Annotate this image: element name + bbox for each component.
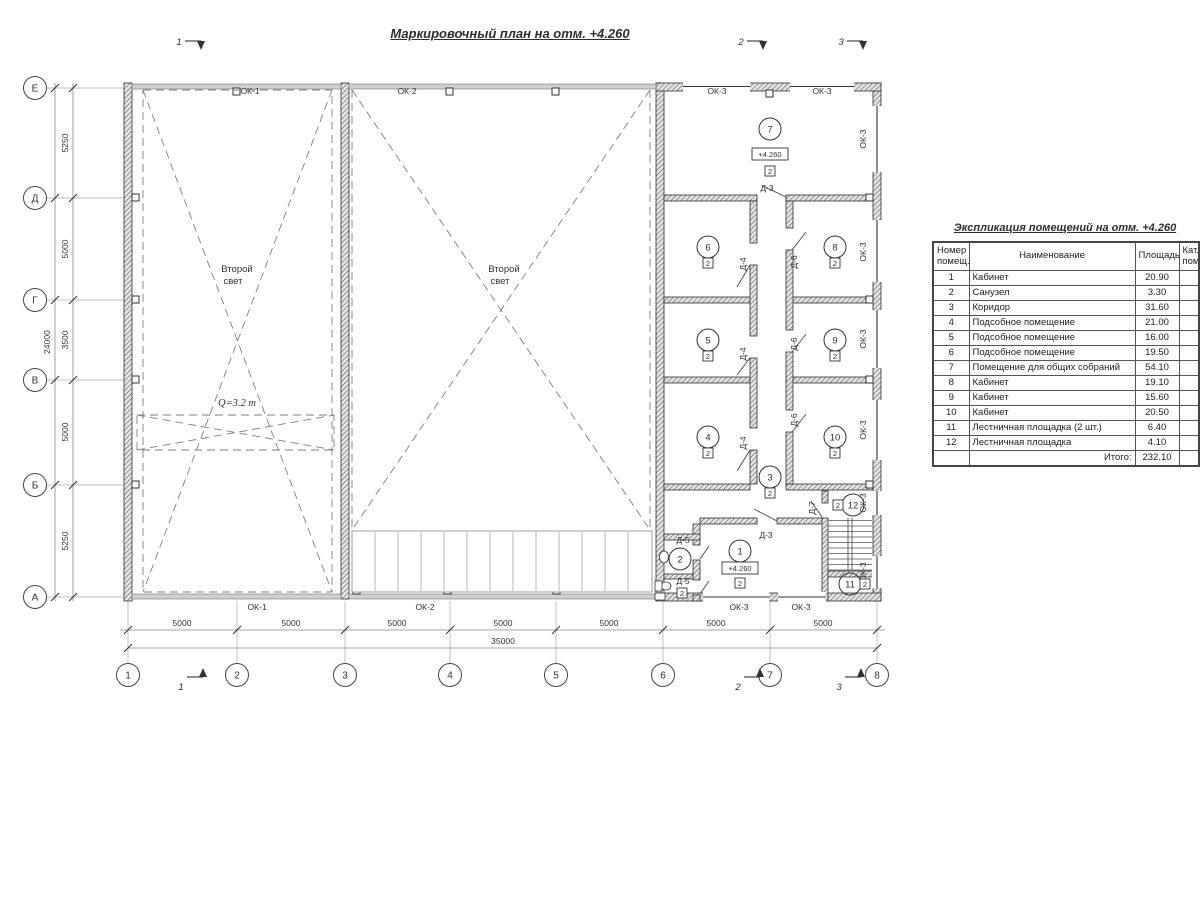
table-row: 9Кабинет15.60 bbox=[933, 391, 1199, 406]
table-cell: 1 bbox=[933, 271, 969, 286]
section-mark-label: 1 bbox=[176, 37, 181, 48]
table-cell: 9 bbox=[933, 391, 969, 406]
table-cell bbox=[1179, 316, 1199, 331]
second-light-label: Второй bbox=[221, 264, 252, 275]
section-mark-label: 3 bbox=[838, 37, 844, 48]
section-mark-label: 2 bbox=[737, 37, 744, 48]
window-label: ОК-3 bbox=[858, 129, 868, 148]
hall-glazed-walls bbox=[132, 84, 656, 599]
drawing-sheet: Маркировочный план на отм. +4.260 bbox=[0, 0, 1200, 900]
table-cell: 10 bbox=[933, 406, 969, 421]
section-mark-label: 1 bbox=[178, 682, 183, 693]
window-label: ОК-3 bbox=[729, 602, 748, 612]
table-cell bbox=[1179, 301, 1199, 316]
axis-row-label: Д bbox=[32, 194, 39, 205]
table-row: 1Кабинет20.90 bbox=[933, 271, 1199, 286]
table-cell bbox=[1179, 331, 1199, 346]
table-cell bbox=[1179, 436, 1199, 451]
table-cell: Коридор bbox=[969, 301, 1135, 316]
axis-row-label: Е bbox=[32, 84, 39, 95]
table-cell bbox=[1179, 271, 1199, 286]
door-label: Д-6 bbox=[789, 337, 799, 351]
window-label: ОК-1 bbox=[247, 602, 266, 612]
table-cell: 2 bbox=[933, 286, 969, 301]
total-value: 232.10 bbox=[1135, 451, 1179, 467]
door-label: Д-4 bbox=[738, 347, 748, 361]
window-label: ОК-3 bbox=[812, 86, 831, 96]
axis-col-label: 4 bbox=[447, 671, 453, 682]
table-cell bbox=[1179, 286, 1199, 301]
axis-row-label: Г bbox=[32, 296, 38, 307]
window-label: ОК-2 bbox=[397, 86, 416, 96]
explication-table-block: Экспликация помещений на отм. +4.260 Ном… bbox=[932, 222, 1198, 467]
axis-row-label: В bbox=[32, 376, 39, 387]
table-cell bbox=[1179, 406, 1199, 421]
window-label: ОК-3 bbox=[858, 420, 868, 439]
table-cell: Подсобное помещение bbox=[969, 346, 1135, 361]
total-empty-cell bbox=[1179, 451, 1199, 467]
category-label: 2 bbox=[738, 579, 742, 588]
door-label: Д-5 bbox=[676, 576, 690, 586]
room-number: 12 bbox=[848, 501, 859, 512]
category-label: 2 bbox=[833, 352, 837, 361]
axis-col-label: 3 bbox=[342, 671, 348, 682]
dim-label: 5000 bbox=[494, 618, 513, 628]
table-row: 8Кабинет19.10 bbox=[933, 376, 1199, 391]
col-header-room-number: Номер помещ. bbox=[933, 242, 969, 271]
section-mark-label: 2 bbox=[734, 682, 741, 693]
col-header-area: Площадь bbox=[1135, 242, 1179, 271]
table-header-row: Номер помещ. Наименование Площадь Кат. п… bbox=[933, 242, 1199, 271]
table-cell: Подсобное помещение bbox=[969, 316, 1135, 331]
col-header-name: Наименование bbox=[969, 242, 1135, 271]
door-label: Д-3 bbox=[759, 530, 773, 540]
room-number: 8 bbox=[832, 243, 837, 254]
dim-total-label: 35000 bbox=[491, 636, 515, 646]
door-label: Д-3 bbox=[760, 183, 774, 193]
dim-label: 5000 bbox=[814, 618, 833, 628]
table-row: 3Коридор31.60 bbox=[933, 301, 1199, 316]
dim-label: 5250 bbox=[60, 133, 70, 152]
room-number: 11 bbox=[845, 580, 855, 591]
explication-body: 1Кабинет20.902Санузел3.303Коридор31.604П… bbox=[933, 271, 1199, 451]
room-number: 5 bbox=[705, 336, 710, 347]
category-label: 2 bbox=[706, 449, 710, 458]
axis-col-label: 6 bbox=[660, 671, 666, 682]
category-label: 2 bbox=[768, 167, 772, 176]
table-cell: 16.00 bbox=[1135, 331, 1179, 346]
table-row: 12Лестничная площадка4.10 bbox=[933, 436, 1199, 451]
dimensions-bottom: 5000 5000 5000 5000 5000 5000 5000 35000… bbox=[117, 601, 889, 687]
category-label: 2 bbox=[706, 259, 710, 268]
table-row: 11Лестничная площадка (2 шт.)6.40 bbox=[933, 421, 1199, 436]
room-number: 10 bbox=[830, 433, 841, 444]
section-mark-label: 3 bbox=[836, 682, 842, 693]
table-cell: Кабинет bbox=[969, 376, 1135, 391]
explication-title: Экспликация помещений на отм. +4.260 bbox=[932, 222, 1198, 234]
dim-label: 5000 bbox=[60, 422, 70, 441]
window-label: ОК-3 bbox=[707, 86, 726, 96]
table-cell: Подсобное помещение bbox=[969, 331, 1135, 346]
table-cell: Кабинет bbox=[969, 391, 1135, 406]
axis-col-label: 2 bbox=[234, 671, 240, 682]
table-cell: 12 bbox=[933, 436, 969, 451]
room-number: 6 bbox=[705, 243, 710, 254]
category-label: 2 bbox=[680, 589, 684, 598]
room-number: 2 bbox=[677, 555, 682, 566]
category-label: 2 bbox=[863, 580, 867, 589]
table-cell: 8 bbox=[933, 376, 969, 391]
table-cell: Лестничная площадка (2 шт.) bbox=[969, 421, 1135, 436]
elevation-label: +4.260 bbox=[758, 150, 781, 159]
door-label: Д-5 bbox=[676, 535, 690, 545]
door-label: Д-7 bbox=[807, 501, 817, 515]
window-label: ОК-3 bbox=[858, 242, 868, 261]
window-label: ОК-3 bbox=[858, 329, 868, 348]
table-cell: 4.10 bbox=[1135, 436, 1179, 451]
table-cell: 19.50 bbox=[1135, 346, 1179, 361]
table-cell bbox=[1179, 376, 1199, 391]
door-label: Д-6 bbox=[789, 413, 799, 427]
category-label: 2 bbox=[706, 352, 710, 361]
category-label: 2 bbox=[836, 501, 840, 510]
door-label: Д-6 bbox=[789, 255, 799, 269]
table-cell: 3 bbox=[933, 301, 969, 316]
axis-col-label: 1 bbox=[125, 671, 131, 682]
table-cell: 6 bbox=[933, 346, 969, 361]
table-cell: 19.10 bbox=[1135, 376, 1179, 391]
table-cell: 54.10 bbox=[1135, 361, 1179, 376]
dim-label: 5250 bbox=[60, 531, 70, 550]
table-cell: 3.30 bbox=[1135, 286, 1179, 301]
table-cell: 6.40 bbox=[1135, 421, 1179, 436]
total-label: Итого: bbox=[969, 451, 1135, 467]
second-light-label: свет bbox=[490, 276, 510, 287]
axis-row-label: Б bbox=[32, 481, 39, 492]
table-cell bbox=[1179, 361, 1199, 376]
total-empty-cell bbox=[933, 451, 969, 467]
axis-col-label: 7 bbox=[767, 671, 773, 682]
table-cell: Помещение для общих собраний bbox=[969, 361, 1135, 376]
second-light-label: Второй bbox=[488, 264, 519, 275]
category-label: 2 bbox=[833, 449, 837, 458]
dim-label: 5000 bbox=[707, 618, 726, 628]
table-cell bbox=[1179, 421, 1199, 436]
table-cell: 20.90 bbox=[1135, 271, 1179, 286]
dim-label: 5000 bbox=[282, 618, 301, 628]
table-cell: Санузел bbox=[969, 286, 1135, 301]
table-row: 7Помещение для общих собраний54.10 bbox=[933, 361, 1199, 376]
table-cell: 5 bbox=[933, 331, 969, 346]
table-cell bbox=[1179, 391, 1199, 406]
table-cell: 21.00 bbox=[1135, 316, 1179, 331]
table-cell: 20.50 bbox=[1135, 406, 1179, 421]
elevation-label: +4.260 bbox=[728, 564, 751, 573]
dim-label: 5000 bbox=[60, 239, 70, 258]
category-label: 2 bbox=[768, 489, 772, 498]
table-row: 6Подсобное помещение19.50 bbox=[933, 346, 1199, 361]
dim-label: 5000 bbox=[388, 618, 407, 628]
room-number: 4 bbox=[705, 433, 710, 444]
room-number: 1 bbox=[737, 547, 742, 558]
crane-capacity-label: Q=3.2 т bbox=[218, 398, 256, 409]
table-cell: 7 bbox=[933, 361, 969, 376]
window-label: ОК-2 bbox=[415, 602, 434, 612]
table-cell: 11 bbox=[933, 421, 969, 436]
table-row: 10Кабинет20.50 bbox=[933, 406, 1199, 421]
window-label: ОК-3 bbox=[791, 602, 810, 612]
room-number: 7 bbox=[767, 125, 772, 136]
table-cell: Лестничная площадка bbox=[969, 436, 1135, 451]
table-cell: 31.60 bbox=[1135, 301, 1179, 316]
col-header-category: Кат. пом. bbox=[1179, 242, 1199, 271]
dim-label: 3500 bbox=[60, 330, 70, 349]
table-cell: Кабинет bbox=[969, 406, 1135, 421]
dimensions-left: Е Д Г В Б А 5250 5000 3500 5000 5250 240… bbox=[24, 77, 125, 609]
table-row: 2Санузел3.30 bbox=[933, 286, 1199, 301]
table-cell: Кабинет bbox=[969, 271, 1135, 286]
second-light-label: свет bbox=[223, 276, 243, 287]
dim-total-label: 24000 bbox=[42, 330, 52, 354]
dashed-openings: Второй свет Второй свет Q=3.2 т bbox=[137, 90, 650, 592]
room-number: 3 bbox=[767, 473, 772, 484]
axis-col-label: 8 bbox=[874, 671, 880, 682]
window-label: ОК-1 bbox=[240, 86, 259, 96]
table-cell bbox=[1179, 346, 1199, 361]
axis-row-label: А bbox=[32, 593, 39, 604]
explication-table: Номер помещ. Наименование Площадь Кат. п… bbox=[932, 241, 1200, 467]
table-row: 4Подсобное помещение21.00 bbox=[933, 316, 1199, 331]
platform bbox=[352, 531, 652, 592]
room-number: 9 bbox=[832, 336, 837, 347]
floor-plan-walls bbox=[124, 83, 881, 601]
table-cell: 4 bbox=[933, 316, 969, 331]
table-total-row: Итого: 232.10 bbox=[933, 451, 1199, 467]
dim-label: 5000 bbox=[600, 618, 619, 628]
table-row: 5Подсобное помещение16.00 bbox=[933, 331, 1199, 346]
category-label: 2 bbox=[833, 259, 837, 268]
door-label: Д-4 bbox=[738, 257, 748, 271]
axis-col-label: 5 bbox=[553, 671, 559, 682]
table-cell: 15.60 bbox=[1135, 391, 1179, 406]
dim-label: 5000 bbox=[173, 618, 192, 628]
door-label: Д-4 bbox=[738, 436, 748, 450]
